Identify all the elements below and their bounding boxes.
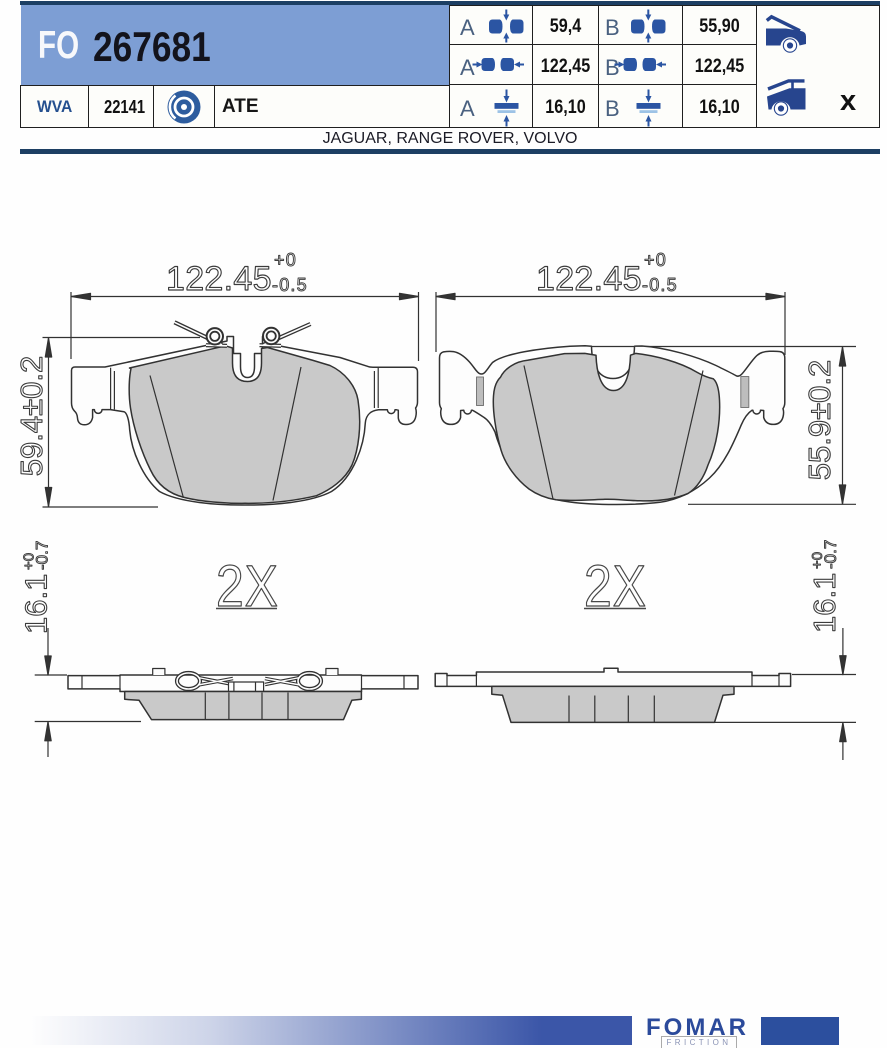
svg-text:-0.5: -0.5 — [272, 275, 308, 295]
svg-text:122.45: 122.45 — [166, 260, 272, 298]
svg-text:122.45: 122.45 — [536, 260, 642, 298]
svg-text:-0.5: -0.5 — [642, 275, 678, 295]
svg-text:-0.7: -0.7 — [33, 541, 52, 570]
svg-text:-0.7: -0.7 — [821, 540, 840, 569]
svg-text:+0: +0 — [274, 250, 297, 270]
svg-text:59.4±0.2: 59.4±0.2 — [14, 356, 49, 476]
svg-text:x: x — [840, 85, 856, 117]
svg-text:+0: +0 — [644, 250, 667, 270]
svg-text:16.1: 16.1 — [19, 574, 54, 634]
svg-text:55.9±0.2: 55.9±0.2 — [802, 360, 837, 480]
svg-text:16.1: 16.1 — [807, 573, 842, 633]
